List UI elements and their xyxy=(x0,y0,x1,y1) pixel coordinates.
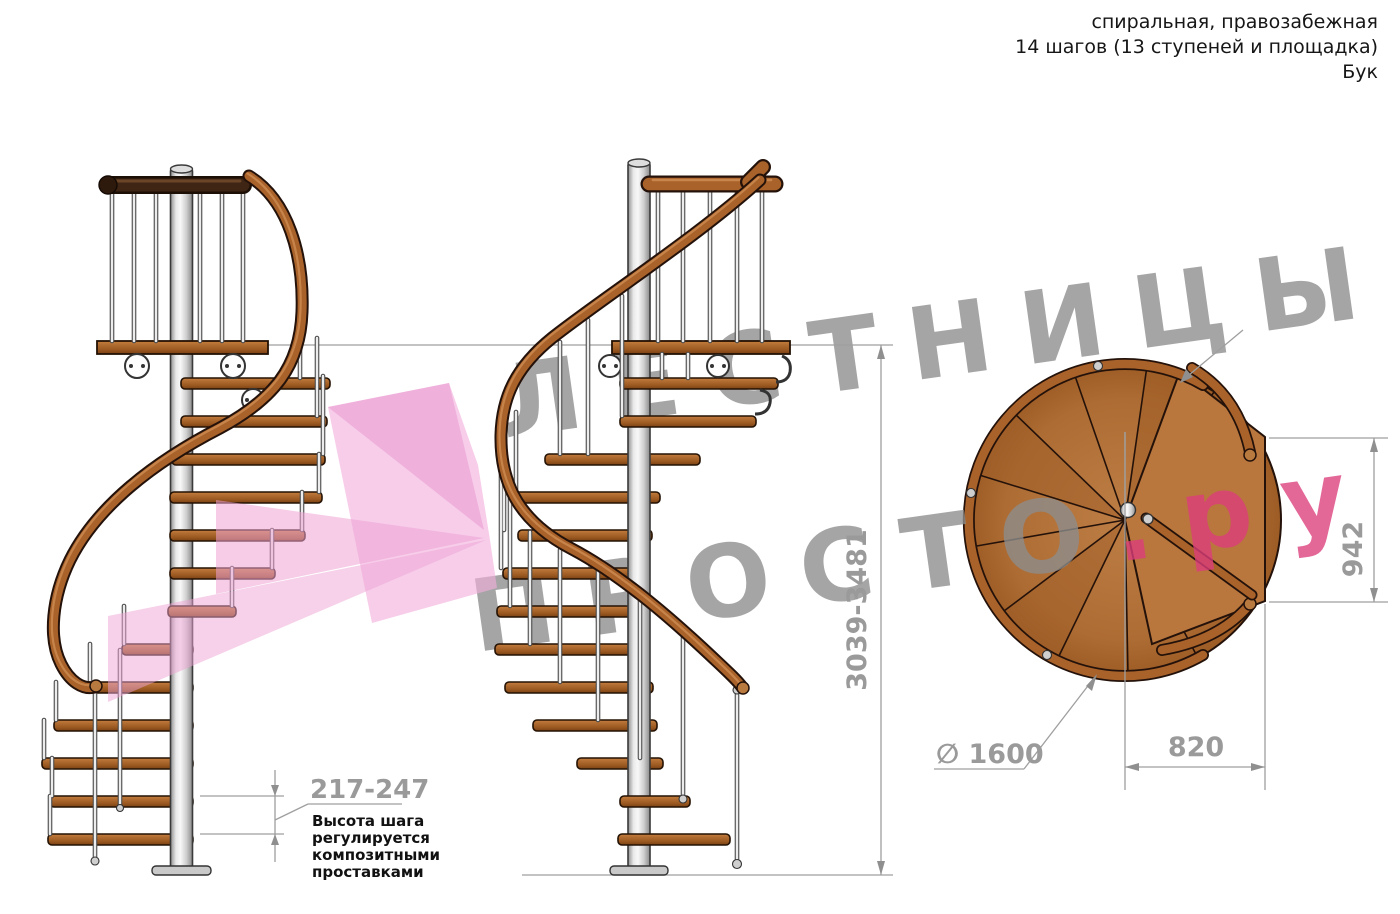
top-platform xyxy=(612,341,790,354)
spiral-staircase-technical-drawing: ЛЕСТНИЦЫ ПРОСТО.ру xyxy=(0,0,1400,914)
landing-depth-label: 942 xyxy=(1338,521,1369,577)
pink-arrow-watermark xyxy=(108,383,497,702)
pole-base-flange xyxy=(610,866,668,875)
note-line: Высота шага xyxy=(312,812,424,830)
step-height-note: Высота шага регулируется композитными пр… xyxy=(312,812,440,881)
header-type: спиральная, правозабежная xyxy=(1091,11,1378,33)
header-block: спиральная, правозабежная 14 шагов (13 с… xyxy=(1015,11,1378,83)
platform-handrail-dark xyxy=(99,176,243,194)
drawing-page: ЛЕСТНИЦЫ ПРОСТО.ру xyxy=(0,0,1400,914)
middle-elevation-view xyxy=(495,159,790,875)
total-height-label: 3039-3481 xyxy=(842,529,873,691)
pole-base-flange xyxy=(152,866,211,875)
watermark-line2: ПРОСТО.ру xyxy=(463,433,1384,676)
landing-width-label: 820 xyxy=(1168,732,1224,763)
header-material: Бук xyxy=(1342,61,1378,83)
center-pole xyxy=(171,168,193,870)
rim-joint xyxy=(1043,651,1052,660)
note-line: проставками xyxy=(312,863,424,881)
header-steps: 14 шагов (13 ступеней и площадка) xyxy=(1015,36,1378,58)
note-line: композитными xyxy=(312,846,440,864)
note-line: регулируется xyxy=(312,829,430,847)
diameter-label: ∅ 1600 xyxy=(936,739,1044,770)
step-height-label: 217-247 xyxy=(310,775,429,805)
